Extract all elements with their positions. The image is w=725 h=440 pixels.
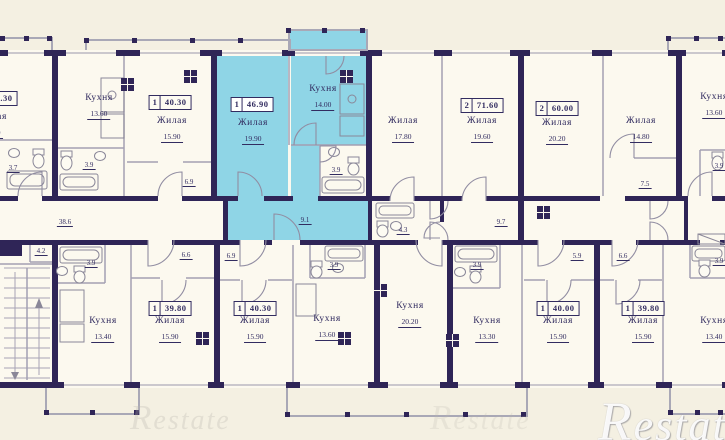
area-mark: 7.5 xyxy=(639,180,652,189)
room-name: Жилая xyxy=(467,116,497,126)
room-area: 19.90 xyxy=(242,134,265,145)
room-area: 20.20 xyxy=(546,134,569,145)
room-name: Кухня xyxy=(396,301,424,311)
apartment-total-area: 40.30 xyxy=(246,302,276,315)
apartment-tag: 140.30 xyxy=(0,91,17,106)
room-area: 15.90 xyxy=(159,332,182,343)
room-label: Жилая14.80 xyxy=(626,116,656,144)
watermark-ghost: Restate xyxy=(130,398,231,438)
room-area: 20.20 xyxy=(399,317,422,328)
room-label: Кухня14.00 xyxy=(309,84,337,112)
apartment-room-count: 1 xyxy=(232,98,243,111)
room-name: Кухня xyxy=(313,314,341,324)
room-name: Жилая xyxy=(238,118,268,128)
room-label: Жилая15.90 xyxy=(155,316,185,344)
room-area: 15.90 xyxy=(161,132,184,143)
room-area: 14.80 xyxy=(630,132,653,143)
room-area: 13.60 xyxy=(703,108,725,119)
room-name: Кухня xyxy=(700,316,725,326)
room-label: Жилая15.90 xyxy=(240,316,270,344)
room-label: Жилая15.90 xyxy=(543,316,573,344)
area-mark: 3.9 xyxy=(328,261,341,270)
room-name: Кухня xyxy=(89,316,117,326)
area-mark: 4.2 xyxy=(35,247,48,256)
room-name: Кухня xyxy=(85,93,113,103)
room-area: 15.90 xyxy=(244,332,267,343)
apartment-total-area: 60.00 xyxy=(548,102,578,115)
room-name: Жилая xyxy=(542,118,572,128)
area-mark: 6.9 xyxy=(183,178,196,187)
apartment-tag: 146.90 xyxy=(231,97,274,112)
apartment-tag: 139.80 xyxy=(149,301,192,316)
room-name: Жилая xyxy=(628,316,658,326)
area-mark: 4.3 xyxy=(397,226,410,235)
room-area: 13.60 xyxy=(88,109,111,120)
apartment-tag: 140.30 xyxy=(149,95,192,110)
room-area: 17.80 xyxy=(392,132,415,143)
apartment-tag: 140.30 xyxy=(234,301,277,316)
area-mark: 9.1 xyxy=(299,216,312,225)
room-label: Кухня13.60 xyxy=(85,93,113,121)
apartment-tag: 140.00 xyxy=(537,301,580,316)
apartment-tag: 260.00 xyxy=(536,101,579,116)
room-name: Кухня xyxy=(473,316,501,326)
room-area: 13.30 xyxy=(476,332,499,343)
room-name: Жилая xyxy=(0,112,7,122)
watermark: Restate xyxy=(598,390,725,440)
room-label: Жилая15.90 xyxy=(157,116,187,144)
apartment-total-area: 40.30 xyxy=(161,96,191,109)
room-area: 15.90 xyxy=(547,332,570,343)
apartment-total-area: 39.80 xyxy=(161,302,191,315)
apartment-total-area: 71.60 xyxy=(473,99,503,112)
area-mark: 3.9 xyxy=(471,261,484,270)
apartment-room-count: 1 xyxy=(150,302,161,315)
room-name: Жилая xyxy=(157,116,187,126)
apartment-total-area: 40.00 xyxy=(549,302,579,315)
room-area: 14.00 xyxy=(312,100,335,111)
room-label: Жилая20.20 xyxy=(542,118,572,146)
room-label: Жилая19.90 xyxy=(238,118,268,146)
room-label: Жилая15.90 xyxy=(628,316,658,344)
apartment-room-count: 1 xyxy=(538,302,549,315)
room-label: Жилая17.80 xyxy=(388,116,418,144)
room-label: Кухня13.40 xyxy=(700,316,725,344)
area-mark: 3.7 xyxy=(7,164,20,173)
apartment-room-count: 1 xyxy=(235,302,246,315)
room-label: Жилая15.90 xyxy=(0,112,7,140)
room-label: Кухня13.30 xyxy=(473,316,501,344)
apartment-tag: 139.80 xyxy=(622,301,665,316)
room-name: Жилая xyxy=(155,316,185,326)
room-name: Кухня xyxy=(700,92,725,102)
apartment-tag: 271.60 xyxy=(461,98,504,113)
room-name: Жилая xyxy=(240,316,270,326)
room-name: Жилая xyxy=(388,116,418,126)
apartment-room-count: 2 xyxy=(462,99,473,112)
area-mark: 6.6 xyxy=(180,251,193,260)
room-label: Кухня13.60 xyxy=(700,92,725,120)
room-area: 19.60 xyxy=(471,132,494,143)
floor-plan: 140.30140.30146.90271.60260.00139.80140.… xyxy=(0,0,725,440)
room-area: 13.40 xyxy=(703,332,725,343)
apartment-total-area: 39.80 xyxy=(634,302,664,315)
area-mark: 3.9 xyxy=(330,166,343,175)
area-mark: 9.7 xyxy=(495,218,508,227)
area-mark: 3.9 xyxy=(85,259,98,268)
apartment-total-area: 40.30 xyxy=(0,92,16,105)
label-layer: 140.30140.30146.90271.60260.00139.80140.… xyxy=(0,0,725,440)
apartment-room-count: 1 xyxy=(623,302,634,315)
room-label: Кухня13.40 xyxy=(89,316,117,344)
room-name: Жилая xyxy=(543,316,573,326)
area-mark: 6.6 xyxy=(617,252,630,261)
room-name: Жилая xyxy=(626,116,656,126)
room-name: Кухня xyxy=(309,84,337,94)
watermark-ghost-2: Restate xyxy=(430,398,531,438)
room-label: Жилая19.60 xyxy=(467,116,497,144)
room-label: Кухня20.20 xyxy=(396,301,424,329)
room-area: 13.40 xyxy=(92,332,115,343)
room-area: 15.90 xyxy=(0,128,3,139)
room-label: Кухня13.60 xyxy=(313,314,341,342)
room-area: 15.90 xyxy=(632,332,655,343)
apartment-total-area: 46.90 xyxy=(243,98,273,111)
apartment-room-count: 1 xyxy=(150,96,161,109)
room-area: 13.60 xyxy=(316,330,339,341)
area-mark: 3.9 xyxy=(83,161,96,170)
area-mark: 38.6 xyxy=(57,218,73,227)
apartment-room-count: 2 xyxy=(537,102,548,115)
area-mark: 6.9 xyxy=(225,252,238,261)
area-mark: 5.9 xyxy=(571,252,584,261)
area-mark: 3.9 xyxy=(713,162,725,171)
area-mark: 3.9 xyxy=(713,257,725,266)
